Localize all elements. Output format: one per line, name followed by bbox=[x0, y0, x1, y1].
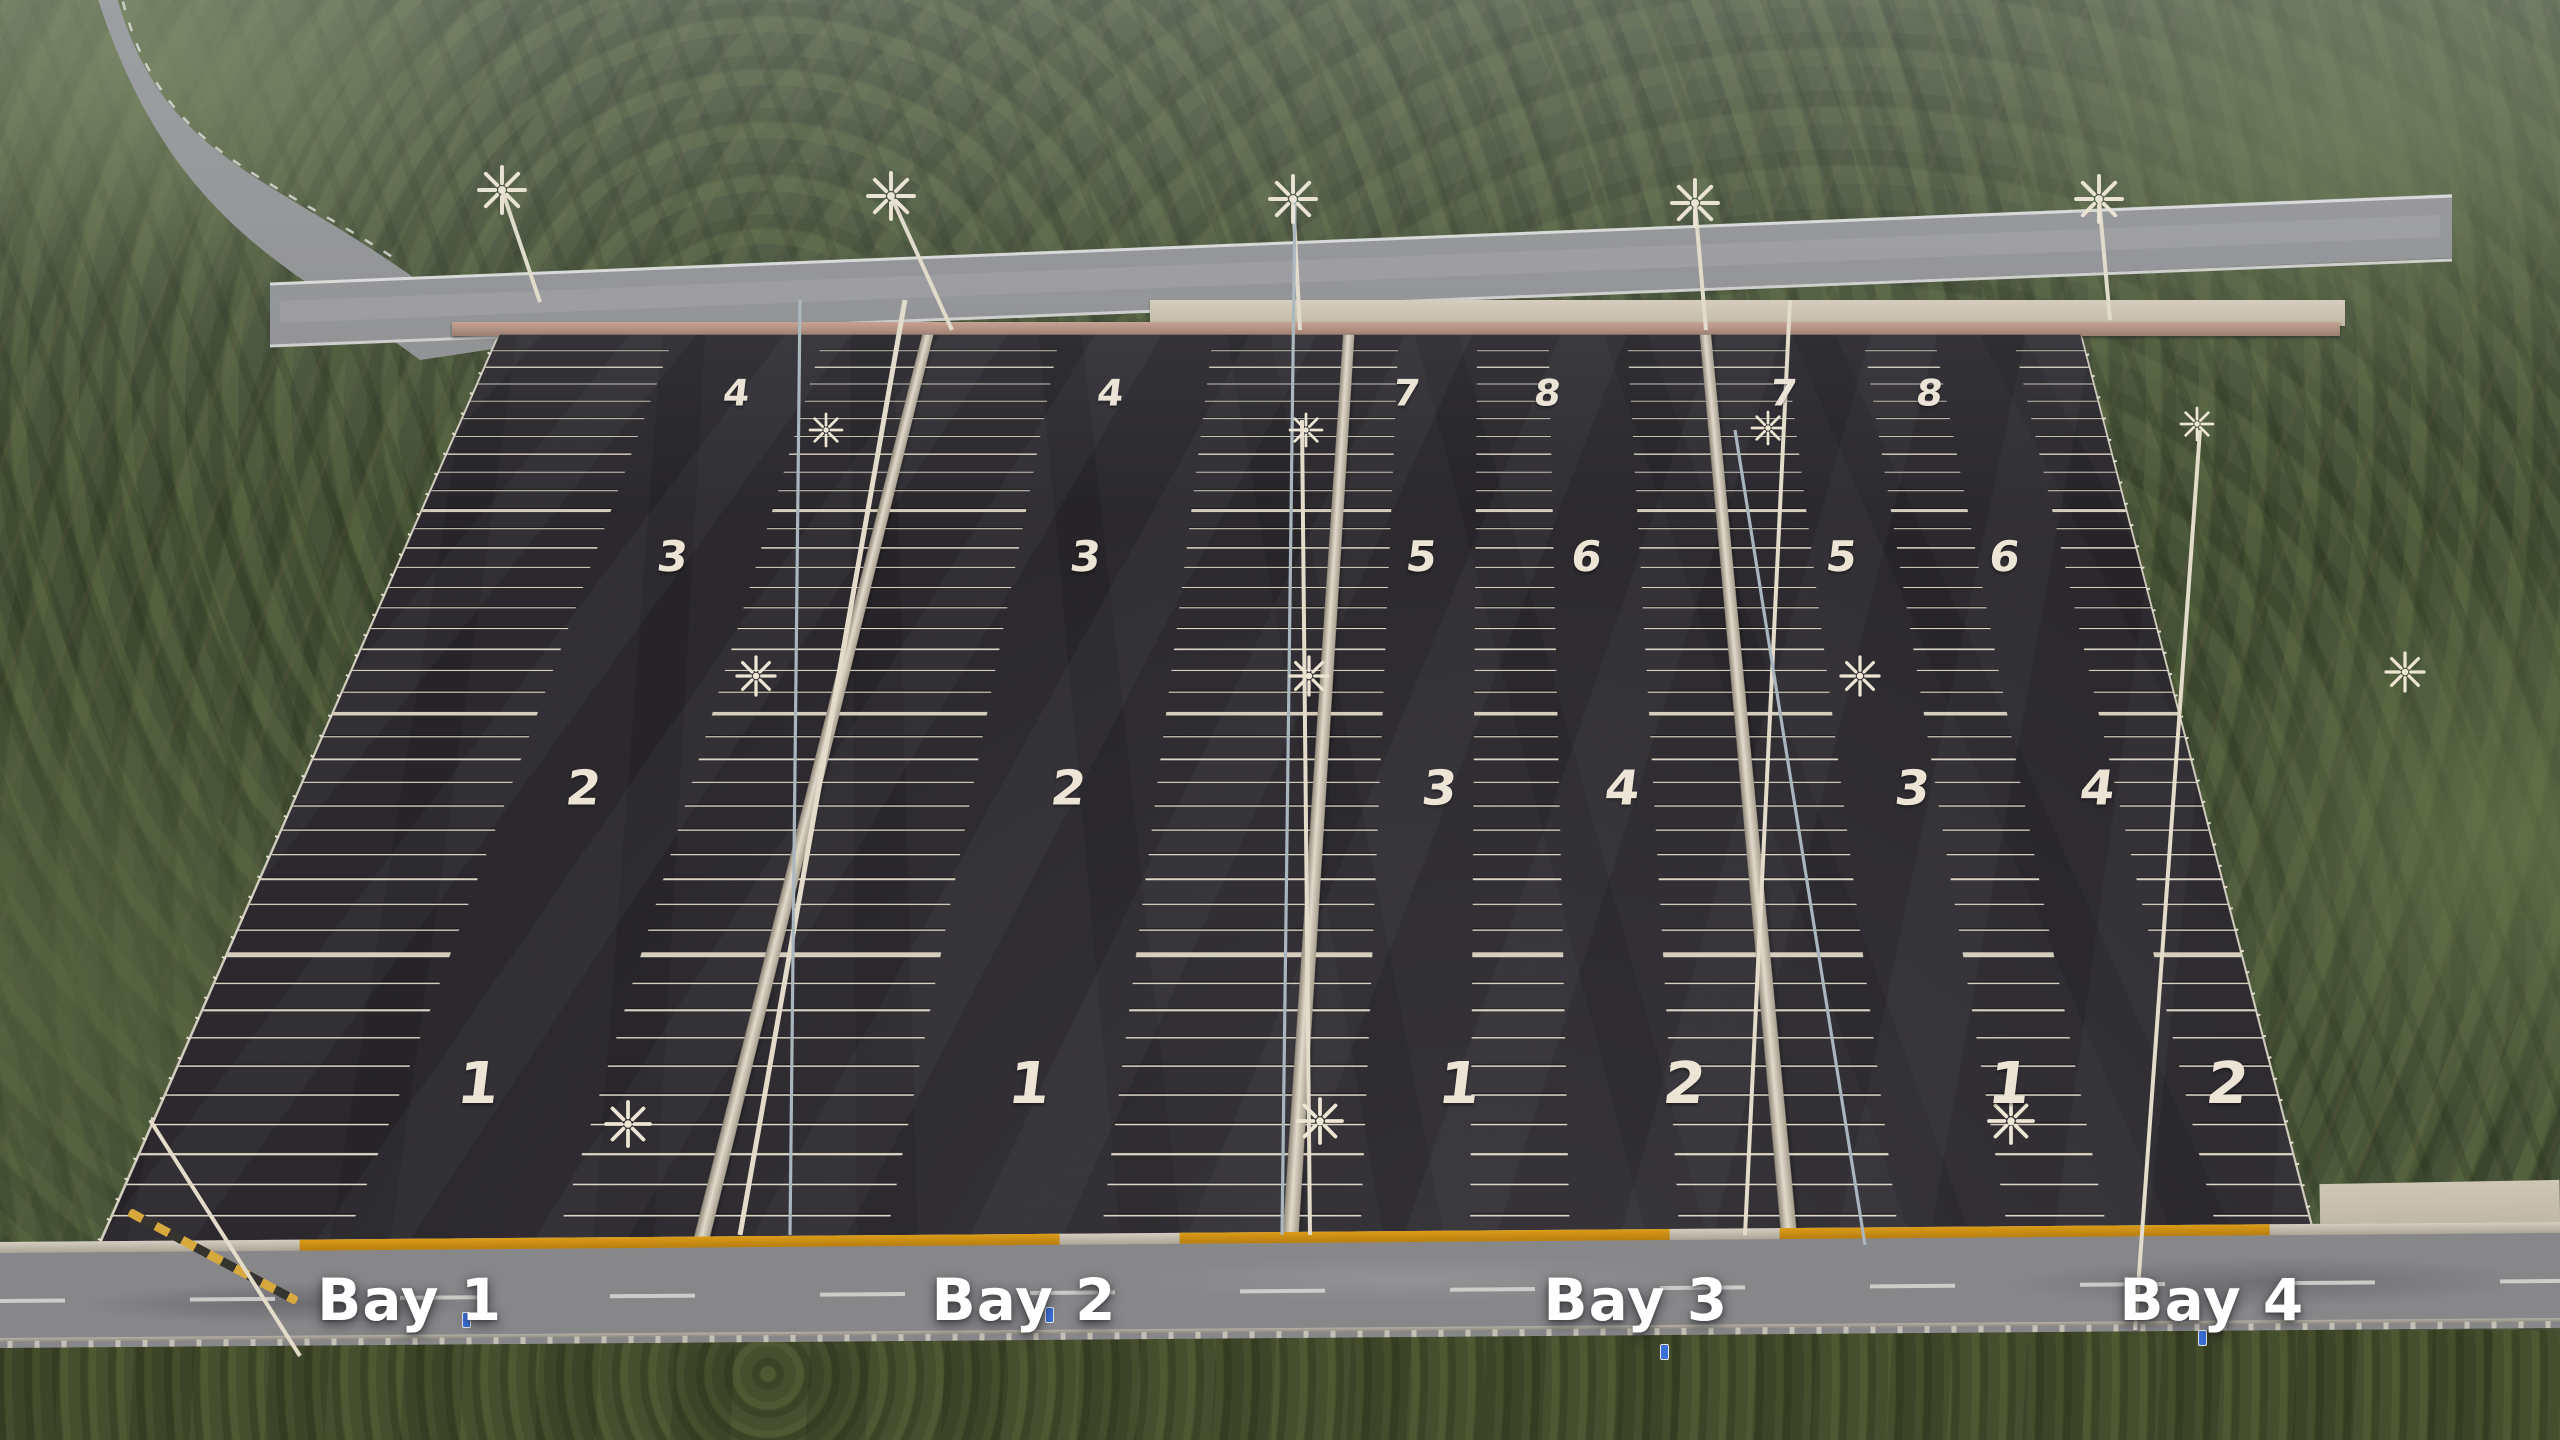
zone-number: 4 bbox=[1095, 372, 1126, 414]
zone-number: 3 bbox=[1892, 760, 1933, 816]
zone-number: 1 bbox=[1985, 1051, 2034, 1118]
zone-number: 2 bbox=[1659, 1051, 1708, 1118]
mast-poles bbox=[150, 190, 2200, 1356]
zone-number: 3 bbox=[654, 533, 690, 582]
bay-label-4[interactable]: Bay 4 bbox=[2119, 1266, 2304, 1334]
aerial-parking-scene: 4 4 7 8 7 8 3 3 5 6 5 6 2 2 3 4 3 4 1 1 … bbox=[0, 0, 2560, 1440]
zone-number: 1 bbox=[1005, 1051, 1054, 1118]
zone-number: 2 bbox=[1047, 760, 1088, 816]
zone-number: 7 bbox=[1391, 372, 1422, 414]
zone-number: 1 bbox=[453, 1051, 502, 1118]
zone-number: 5 bbox=[1403, 533, 1439, 582]
bay-label-3[interactable]: Bay 3 bbox=[1543, 1266, 1728, 1334]
zone-number: 2 bbox=[563, 760, 604, 816]
zone-number: 3 bbox=[1068, 533, 1104, 582]
light-masts bbox=[0, 0, 2560, 1440]
zone-number: 8 bbox=[1532, 372, 1563, 414]
street-light-icon bbox=[479, 167, 2424, 1146]
zone-number: 6 bbox=[1568, 533, 1604, 582]
zone-number: 1 bbox=[1435, 1051, 1484, 1118]
zone-number: 5 bbox=[1823, 533, 1859, 582]
zone-number: 2 bbox=[2203, 1051, 2252, 1118]
bay-label-2[interactable]: Bay 2 bbox=[932, 1266, 1117, 1334]
zone-number: 4 bbox=[1602, 760, 1643, 816]
zone-number: 6 bbox=[1987, 533, 2023, 582]
zone-number: 3 bbox=[1418, 760, 1459, 816]
zone-number: 4 bbox=[721, 372, 752, 414]
zone-number: 4 bbox=[2076, 760, 2117, 816]
bay-label-1[interactable]: Bay 1 bbox=[317, 1266, 502, 1334]
zone-number: 7 bbox=[1768, 372, 1799, 414]
zone-number: 8 bbox=[1914, 372, 1945, 414]
